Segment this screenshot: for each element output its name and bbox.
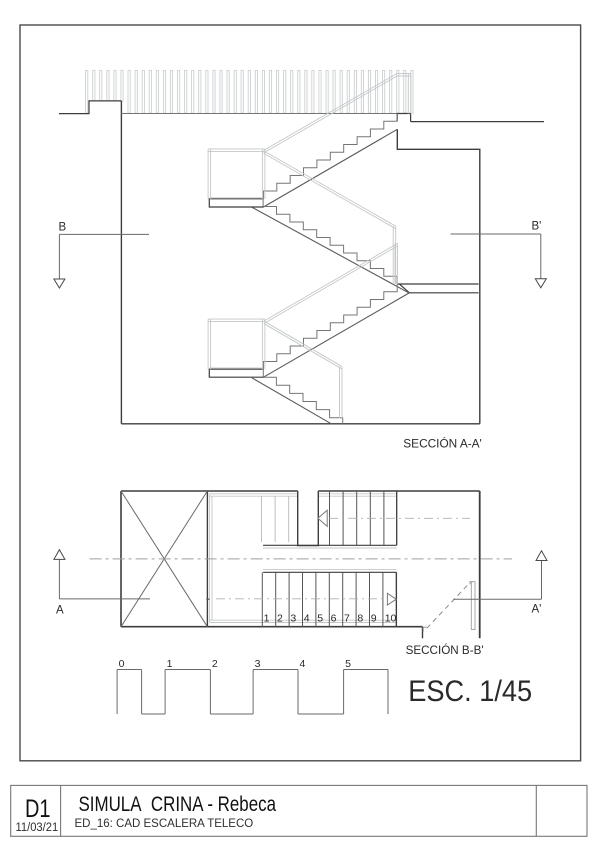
svg-text:D1: D1: [25, 795, 51, 823]
svg-text:4: 4: [300, 658, 306, 670]
svg-text:A': A': [532, 604, 542, 616]
svg-text:7: 7: [344, 613, 350, 625]
svg-text:ESC. 1/45: ESC. 1/45: [408, 675, 532, 708]
svg-text:2: 2: [212, 658, 218, 670]
svg-text:5: 5: [317, 613, 323, 625]
svg-text:11/03/21: 11/03/21: [16, 820, 59, 834]
svg-text:1: 1: [264, 613, 270, 625]
svg-text:3: 3: [255, 658, 261, 670]
svg-text:SECCIÓN B-B': SECCIÓN B-B': [406, 642, 484, 657]
svg-text:5: 5: [345, 658, 351, 670]
svg-text:8: 8: [357, 613, 363, 625]
svg-text:A: A: [56, 605, 64, 617]
svg-text:3: 3: [290, 613, 296, 625]
svg-text:6: 6: [331, 613, 337, 625]
svg-text:SECCIÓN A-A': SECCIÓN A-A': [403, 435, 482, 450]
svg-text:9: 9: [371, 613, 377, 625]
svg-text:4: 4: [304, 613, 310, 625]
svg-text:B': B': [532, 221, 542, 233]
svg-text:B: B: [59, 222, 67, 234]
svg-text:0: 0: [119, 658, 125, 670]
svg-text:2: 2: [277, 613, 283, 625]
svg-text:SIMULA CRINA - Rebeca: SIMULA CRINA - Rebeca: [79, 793, 277, 816]
svg-text:10: 10: [385, 613, 397, 625]
svg-text:ED_16: CAD ESCALERA TELECO: ED_16: CAD ESCALERA TELECO: [75, 818, 254, 830]
svg-text:1: 1: [167, 658, 173, 670]
